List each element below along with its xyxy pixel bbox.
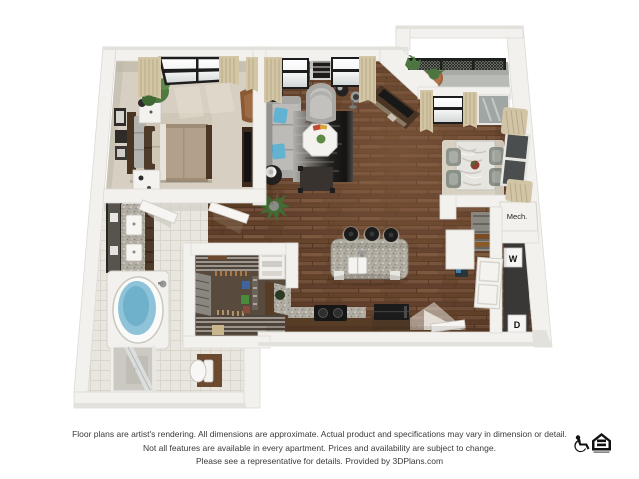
svg-text:D: D xyxy=(514,320,521,330)
svg-text:W: W xyxy=(509,254,518,264)
svg-text:Mech.: Mech. xyxy=(507,212,527,221)
